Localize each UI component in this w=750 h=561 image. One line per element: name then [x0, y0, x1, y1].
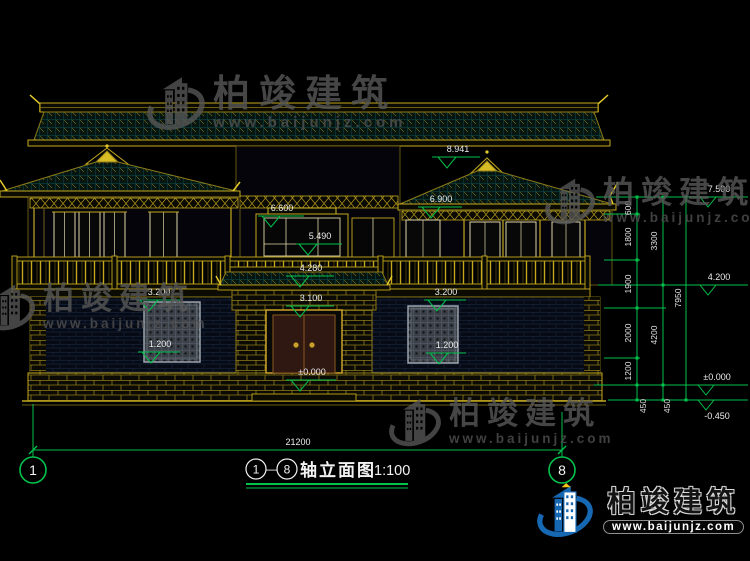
axis-bubble-1: 1: [29, 462, 37, 478]
dim-1900: 1900: [623, 274, 633, 293]
center-upper-wall: [236, 146, 400, 260]
dim-3300: 3300: [649, 231, 659, 250]
title-axis-end: 8: [284, 463, 291, 477]
baijun-logo-color-icon: [536, 476, 594, 546]
dim-7950: 7950: [673, 288, 683, 307]
brand-logo-name: 柏竣建筑: [608, 488, 740, 516]
brand-logo-url: www.baijunjz.com: [603, 520, 744, 534]
mark-left-window-sill: 1.200: [149, 339, 172, 349]
mark-gate-roof: 4.280: [300, 263, 323, 273]
dim-450-a: 450: [638, 399, 648, 413]
right-lattice-window: [408, 306, 458, 363]
title-axis-start: 1: [253, 463, 260, 477]
main-roof: [28, 95, 610, 146]
dim-total-width: 21200: [285, 437, 310, 447]
level-ground: -0.450: [704, 411, 730, 421]
mark-door-top: 3.100: [300, 293, 323, 303]
level-zero: ±0.000: [703, 372, 730, 382]
title-name: 轴立面图: [300, 460, 376, 480]
dim-600: 600: [623, 201, 633, 215]
title-axis-separator: —: [266, 462, 278, 476]
dim-1200: 1200: [623, 361, 633, 380]
drawing-title: 1 — 8 轴立面图 1:100: [246, 459, 410, 480]
title-scale: 1:100: [374, 463, 410, 479]
mark-right-window-sill: 1.200: [436, 340, 459, 350]
mark-right-window-top: 3.200: [435, 287, 458, 297]
dim-450-b: 450: [662, 399, 672, 413]
left-wing-roof: [0, 144, 240, 197]
level-7500: 7.500: [708, 184, 731, 194]
dim-4200: 4200: [649, 325, 659, 344]
brand-logo: 柏竣建筑 www.baijunjz.com: [536, 476, 744, 546]
mark-right-eave: 6.900: [430, 194, 453, 204]
mark-center-top: 6.600: [271, 203, 294, 213]
mark-center-mid: 5.490: [309, 231, 332, 241]
dim-2000: 2000: [623, 323, 633, 342]
mark-ridge: 8.941: [447, 144, 470, 154]
left-lattice-window: [144, 302, 200, 362]
level-4200: 4.200: [708, 272, 731, 282]
elevation-drawing: 8.941 6.900 6.600 5.490 4.280 3.100 3.20…: [0, 0, 750, 561]
mark-left-window-top: 3.200: [148, 287, 171, 297]
mark-entry-zero: ±0.000: [298, 367, 325, 377]
dim-1800: 1800: [623, 227, 633, 246]
